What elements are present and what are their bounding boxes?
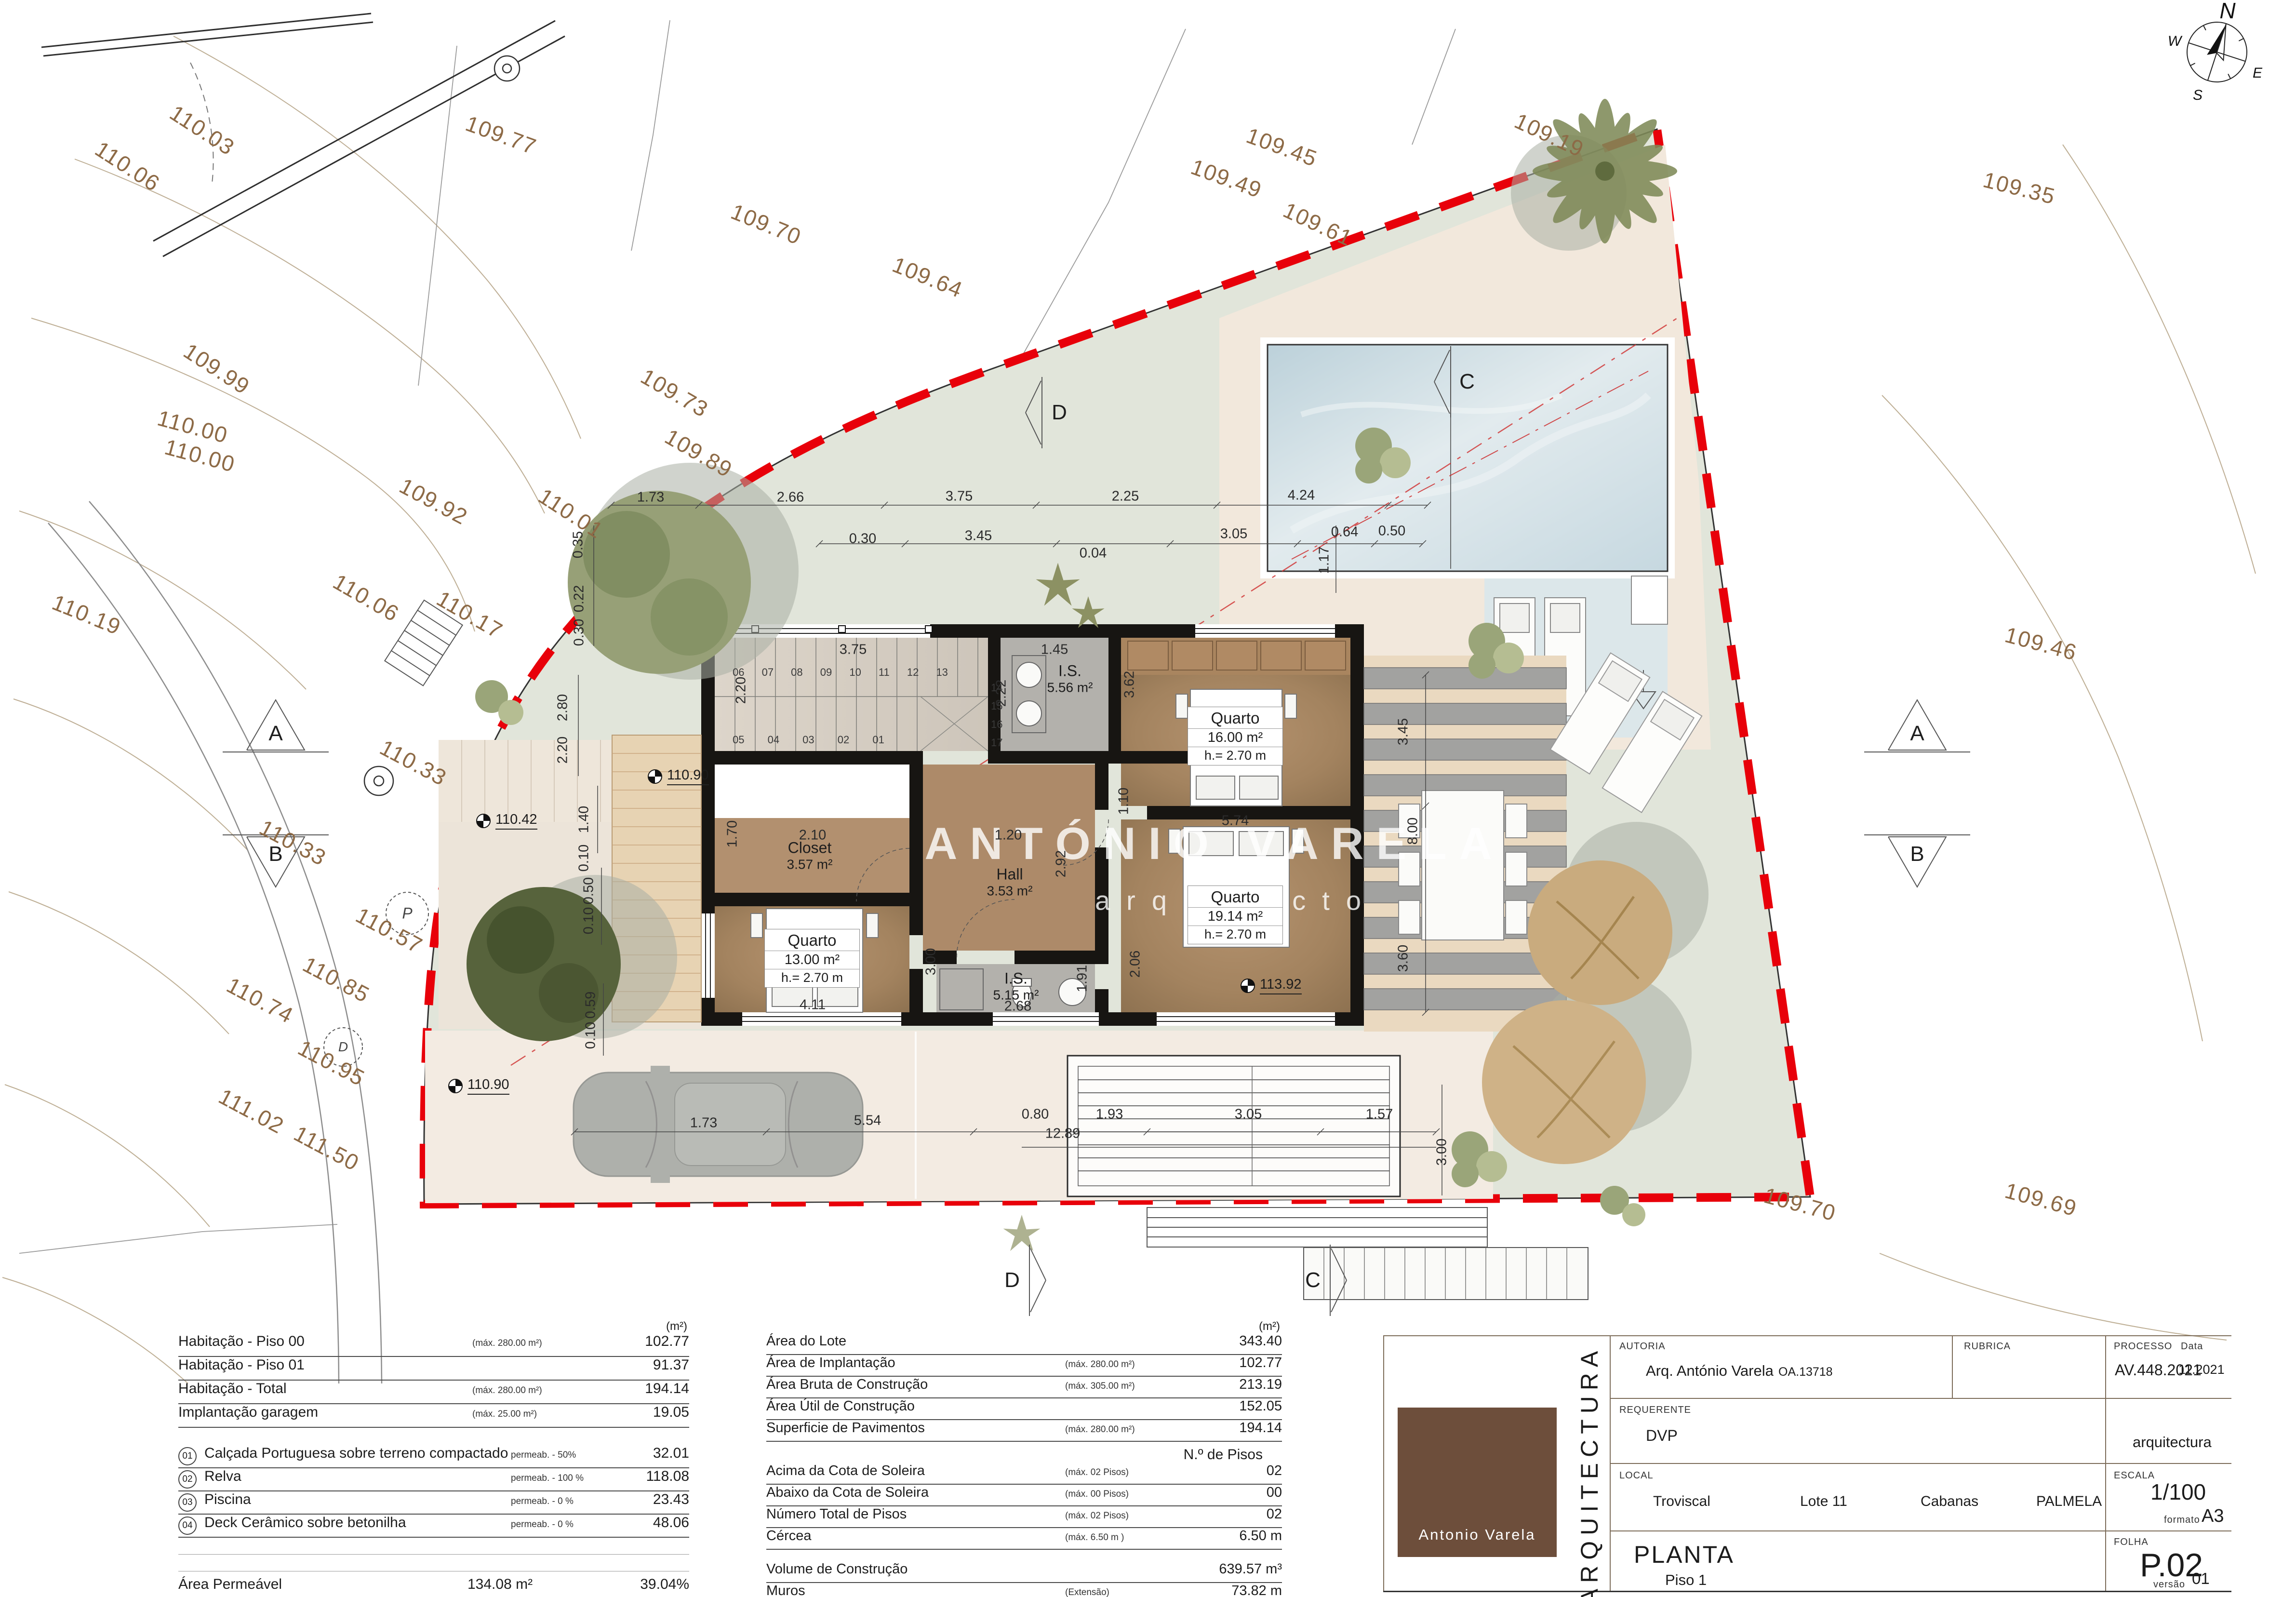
level-marker: 113.92 — [1241, 977, 1302, 994]
drawing-sheet: ANTÓNIO VARELA arquitecto 110.03 110.06 … — [0, 0, 2296, 1597]
dimension-label: 3.05 — [1220, 526, 1247, 542]
section-marker-a: A — [1910, 722, 1924, 746]
dimension-label: 0.10 — [576, 845, 592, 872]
car — [574, 1066, 863, 1183]
section-marker-a: A — [268, 722, 282, 746]
dimension-label: 0.10 — [583, 1022, 599, 1049]
divider — [1383, 1335, 1384, 1592]
stair-numbers-top: 06 07 08 09 10 11 12 13 — [733, 666, 948, 679]
dimension-label: 3.45 — [965, 528, 992, 544]
local-value-3: Cabanas — [1921, 1493, 1978, 1510]
discipline-title: ARQUITECTURA — [1575, 1345, 1603, 1597]
requerente-value: DVP — [1646, 1427, 1678, 1445]
dimension-label: 0.50 — [1378, 523, 1405, 539]
section-marker-b: B — [1910, 842, 1924, 866]
room-label-quarto-13: Quarto 13.00 m² h.= 2.70 m — [764, 929, 860, 988]
dimension-label: 0.30 — [572, 619, 587, 646]
dimension-label: 3.05 — [1235, 1107, 1262, 1123]
dimension-label: 0.59 — [583, 992, 599, 1019]
dimension-label: 1.20 — [995, 828, 1022, 844]
section-marker-d: D — [1004, 1268, 1020, 1292]
section-marker-c: C — [1459, 370, 1475, 394]
level-marker-icon — [648, 769, 662, 784]
compass-e: E — [2253, 65, 2262, 81]
total-row: Área Permeável 134.08 m² 39.04% — [178, 1576, 689, 1597]
level-marker-icon — [1241, 979, 1255, 993]
versao-value: 01 — [2192, 1570, 2210, 1588]
divider — [178, 1538, 689, 1555]
dimension-label: 1.40 — [576, 806, 592, 833]
table-row: Implantação garagem (máx. 25.00 m²) 19.0… — [178, 1404, 689, 1428]
dimension-label: 0.35 — [571, 531, 587, 558]
table-row: Área de Implantação (máx. 280.00 m²) 102… — [766, 1355, 1282, 1377]
processo-label: PROCESSO — [2114, 1341, 2172, 1352]
room-label-hall: Hall 3.53 m² — [987, 866, 1033, 899]
divider — [178, 1555, 689, 1571]
dimension-label: 1.73 — [637, 490, 664, 506]
dimension-label: 0.30 — [849, 531, 876, 547]
formato-label: formato — [2164, 1515, 2200, 1526]
level-marker-icon — [476, 814, 491, 828]
dimension-label: 2.06 — [1128, 951, 1144, 978]
dimension-label: 0.64 — [1331, 524, 1358, 540]
level-marker: 110.42 — [476, 812, 537, 830]
sheet-subtitle: Piso 1 — [1665, 1571, 1707, 1589]
dimension-label: 1.57 — [1366, 1107, 1393, 1123]
local-label: LOCAL — [1619, 1470, 1654, 1481]
table-row: Habitação - Total (máx. 280.00 m²) 194.1… — [178, 1381, 689, 1404]
table-row: Área Bruta de Construção (máx. 305.00 m²… — [766, 1377, 1282, 1398]
plant-marker-p: P — [402, 905, 412, 923]
dimension-label: 3.75 — [946, 489, 973, 505]
autoria-number: OA.13718 — [1778, 1365, 1833, 1379]
dept-value: arquitectura — [2133, 1434, 2212, 1451]
dimension-label: 1.45 — [1041, 642, 1068, 658]
dimension-label: 3.60 — [1396, 945, 1412, 972]
dimension-label: 1.91 — [1075, 965, 1091, 992]
table-row: Área do Lote 343.40 — [766, 1333, 1282, 1355]
unit-header: (m²) — [178, 1320, 689, 1333]
dimension-label: 0.10 — [581, 907, 597, 934]
wardrobe — [1128, 641, 1346, 670]
escala-label: ESCALA — [2114, 1470, 2155, 1481]
dimension-label: 2.66 — [777, 490, 804, 506]
dimension-label: 8.00 — [1405, 818, 1421, 845]
divider — [1610, 1530, 2231, 1531]
compass-w: W — [2168, 33, 2181, 50]
level-marker-icon — [448, 1079, 463, 1093]
table-row: Número Total de Pisos (máx. 02 Pisos) 02 — [766, 1506, 1282, 1528]
material-row: 04 Deck Cerâmico sobre betonilha permeab… — [178, 1515, 689, 1538]
stair-numbers-column: 14 15 16 17 — [991, 679, 1002, 752]
table-row: Volume de Construção 639.57 m³ — [766, 1561, 1282, 1583]
room-label-closet: Closet 3.57 m² — [787, 839, 833, 872]
material-row: 03 Piscina permeab. - 0 % 23.43 — [178, 1491, 689, 1515]
section-marker-d: D — [1052, 401, 1067, 425]
areas-table-middle: (m²) Área do Lote 343.40 Área de Implant… — [766, 1320, 1282, 1597]
areas-table-left: (m²) Habitação - Piso 00 (máx. 280.00 m²… — [178, 1320, 689, 1597]
palm-tree — [1533, 99, 1677, 243]
table-row: Área Útil de Construção 152.05 — [766, 1398, 1282, 1420]
dimension-label: 1.70 — [725, 820, 741, 847]
material-row: 01 Calçada Portuguesa sobre terreno comp… — [178, 1445, 689, 1468]
dimension-label: 0.04 — [1080, 546, 1107, 562]
dimension-label: 3.62 — [1122, 671, 1138, 698]
dimension-label: 1.10 — [1116, 788, 1132, 815]
dimension-label: 1.17 — [1317, 547, 1333, 574]
title-block: Antonio Varela ARQUITECTURA AUTORIA Arq.… — [1383, 1320, 2231, 1592]
divider — [1383, 1335, 2231, 1336]
dimension-label: 3.00 — [923, 948, 939, 975]
dimension-label: 3.00 — [1434, 1139, 1450, 1166]
dimension-label: 2.20 — [734, 677, 749, 704]
dimension-label: 0.80 — [1022, 1107, 1049, 1123]
dimension-label: 5.74 — [1222, 813, 1249, 829]
tree-tan-1 — [1528, 860, 1672, 1005]
dimension-label: 0.22 — [572, 585, 587, 612]
section-marker-b: B — [268, 842, 282, 866]
logo-name: Antonio Varela — [1398, 1526, 1557, 1543]
local-value-1: Troviscal — [1653, 1493, 1710, 1510]
rubrica-label: RUBRICA — [1964, 1341, 2011, 1352]
data-label: Data — [2181, 1341, 2203, 1352]
divider — [1952, 1335, 1953, 1398]
table-row: Habitação - Piso 00 (máx. 280.00 m²) 102… — [178, 1333, 689, 1357]
compass-rose-icon — [2179, 14, 2255, 90]
dimension-label: 4.24 — [1288, 488, 1315, 504]
divider — [1610, 1463, 2231, 1464]
local-value-2: Lote 11 — [1800, 1493, 1847, 1510]
divider — [1610, 1398, 2231, 1399]
dimension-label: 1.93 — [1096, 1107, 1123, 1123]
compass-s: S — [2193, 87, 2203, 104]
dimension-label: 1.73 — [690, 1115, 717, 1131]
level-marker: 110.90 — [648, 767, 709, 785]
stair-numbers-bottom: 05 04 03 02 01 — [733, 734, 884, 746]
sheet-title: PLANTA — [1634, 1541, 1735, 1569]
tree-tan-2 — [1482, 1000, 1646, 1164]
room-label-quarto-19: Quarto 19.14 m² h.= 2.70 m — [1188, 886, 1283, 944]
exterior-steps — [1147, 1208, 1588, 1300]
room-label-quarto-16: Quarto 16.00 m² h.= 2.70 m — [1188, 707, 1283, 765]
autoria-label: AUTORIA — [1619, 1341, 1666, 1352]
divider — [1383, 1591, 2231, 1592]
dimension-label: 2.25 — [1112, 489, 1139, 505]
dimension-label: 2.80 — [555, 694, 571, 721]
table-row: Superficie de Pavimentos (máx. 280.00 m²… — [766, 1420, 1282, 1442]
compass-n: N — [2219, 0, 2235, 24]
dimension-label: 0.50 — [581, 877, 597, 904]
autoria-value: Arq. António Varela — [1646, 1362, 1774, 1380]
table-row: Muros (Extensão) 73.82 m — [766, 1583, 1282, 1597]
dimension-label: 4.11 — [800, 997, 826, 1013]
requerente-label: REQUERENTE — [1619, 1405, 1691, 1416]
dimension-label: 12.89 — [1045, 1126, 1081, 1142]
room-label-is-556: I.S. 5.56 m² — [1047, 662, 1093, 696]
material-row: 02 Relva permeab. - 100 % 118.08 — [178, 1468, 689, 1491]
dimension-label: 3.75 — [840, 642, 867, 658]
table-row: Habitação - Piso 01 91.37 — [178, 1357, 689, 1381]
unit-header: (m²) — [766, 1320, 1282, 1333]
formato-value: A3 — [2202, 1506, 2224, 1527]
garage-roof — [1068, 1056, 1400, 1196]
dimension-label: 2.92 — [1054, 850, 1069, 877]
pisos-header: N.º de Pisos — [766, 1442, 1282, 1463]
escala-value: 1/100 — [2150, 1479, 2206, 1505]
plant-marker-d: D — [338, 1039, 348, 1055]
room-label-is-515: I.S. 5.15 m² — [993, 970, 1039, 1003]
dimension-label: 2.20 — [555, 737, 571, 764]
table-row: Abaixo da Cota de Soleira (máx. 00 Pisos… — [766, 1485, 1282, 1506]
architect-logo: Antonio Varela — [1398, 1408, 1557, 1557]
versao-label: versão — [2153, 1579, 2185, 1590]
dimension-label: 5.54 — [854, 1113, 881, 1129]
table-row: Acima da Cota de Soleira (máx. 02 Pisos)… — [766, 1463, 1282, 1485]
local-value-4: PALMELA — [2036, 1493, 2102, 1510]
level-marker: 110.90 — [448, 1077, 509, 1095]
table-row: Cércea (máx. 6.50 m ) 6.50 m — [766, 1528, 1282, 1550]
section-marker-c: C — [1305, 1268, 1321, 1292]
data-value: 11.2021 — [2178, 1362, 2225, 1377]
dimension-label: 3.45 — [1396, 718, 1412, 745]
